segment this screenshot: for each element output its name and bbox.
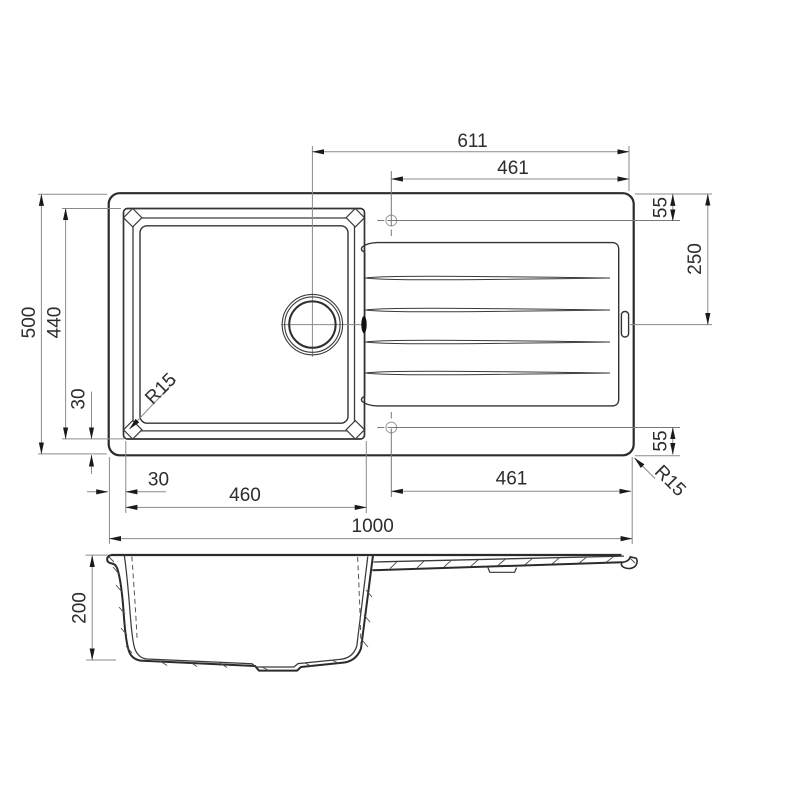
- svg-text:55: 55: [651, 197, 672, 218]
- svg-text:440: 440: [45, 307, 66, 339]
- svg-text:200: 200: [70, 592, 91, 624]
- svg-text:461: 461: [496, 468, 528, 489]
- svg-text:30: 30: [69, 388, 90, 409]
- svg-text:55: 55: [651, 430, 672, 451]
- svg-text:461: 461: [497, 158, 529, 179]
- svg-text:R15: R15: [650, 461, 689, 500]
- svg-text:500: 500: [19, 307, 40, 339]
- svg-text:611: 611: [457, 131, 487, 152]
- svg-text:1000: 1000: [352, 516, 394, 537]
- svg-text:R15: R15: [141, 369, 180, 408]
- svg-text:250: 250: [685, 243, 706, 275]
- svg-text:30: 30: [148, 469, 169, 490]
- svg-text:460: 460: [229, 485, 261, 506]
